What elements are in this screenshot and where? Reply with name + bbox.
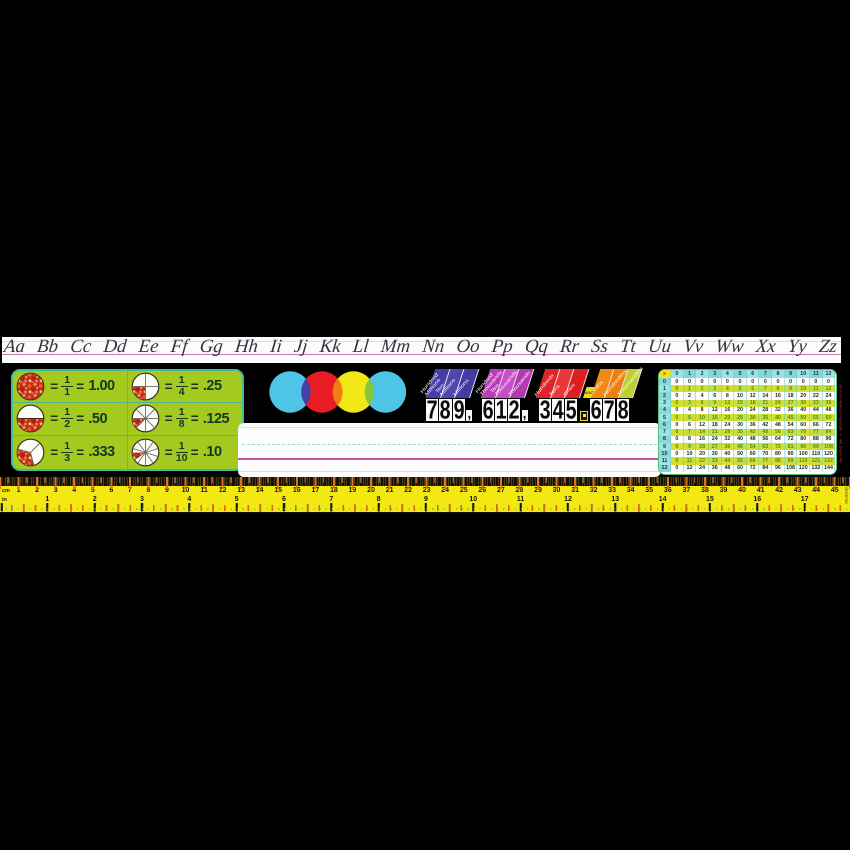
svg-text:1: 1	[495, 399, 506, 421]
svg-text:4: 4	[552, 399, 564, 421]
svg-text:5: 5	[566, 399, 577, 421]
svg-text:6: 6	[591, 399, 602, 421]
svg-text:8: 8	[617, 399, 628, 421]
svg-text:9: 9	[453, 399, 464, 421]
svg-text:7: 7	[604, 399, 615, 421]
svg-text:6: 6	[482, 399, 493, 421]
svg-text:7: 7	[427, 399, 438, 421]
svg-text:2: 2	[509, 399, 520, 421]
svg-text:3: 3	[539, 399, 550, 421]
svg-text:8: 8	[440, 399, 451, 421]
